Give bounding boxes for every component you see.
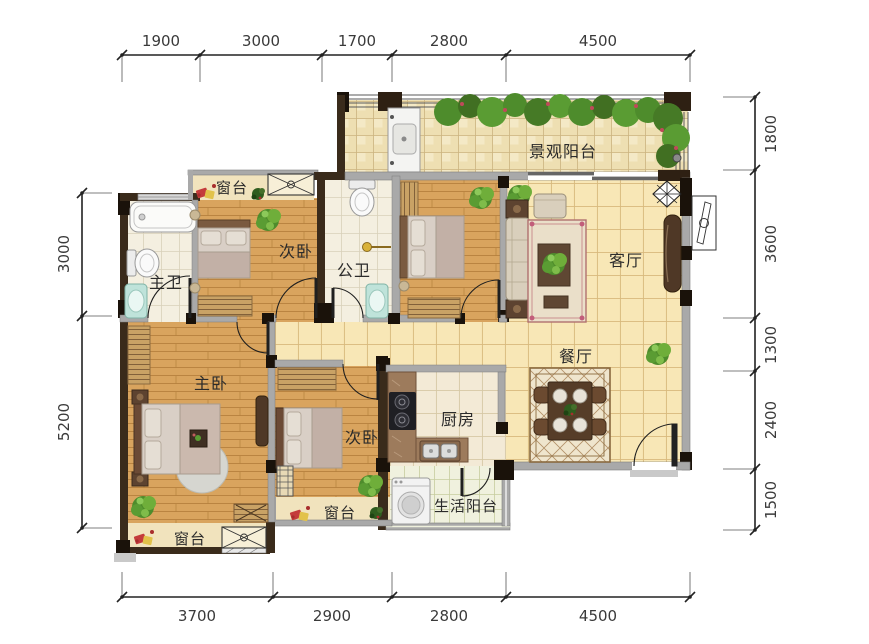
bed-icon [400,216,464,278]
hallway-floor [239,320,509,366]
master-bay-xbox-icon [222,527,266,548]
dim-top-4: 2800 [430,32,468,50]
bench-icon [234,504,268,522]
dim-bottom-3: 2800 [430,607,468,625]
public-bath-label: 公卫 [337,261,371,280]
sink-icon [366,284,388,318]
dim-right-1: 1800 [762,115,780,153]
tv-cabinet-icon [664,215,681,292]
kitchen-label: 厨房 [441,410,475,429]
utility-balcony-label: 生活阳台 [434,497,498,515]
dim-top-5: 4500 [579,32,617,50]
toilet-icon [349,180,375,216]
baywindow-box-icon [268,174,314,195]
bed-icon [276,408,342,468]
duct-shaft-icon [692,196,716,250]
balcony-vanity [388,108,420,172]
dim-left-2: 5200 [55,403,73,441]
stool-icon [399,281,409,291]
wardrobe-icon [408,298,460,318]
dim-bottom-1: 3700 [178,607,216,625]
dining-label: 餐厅 [559,347,593,366]
living-label: 客厅 [609,251,643,270]
sill3-label: 窗台 [324,504,356,522]
double-sink-icon [420,441,460,461]
balcony-drain [673,154,681,162]
sill2-label: 窗台 [174,530,206,548]
sink-icon [125,284,147,318]
wardrobe-icon [128,326,150,384]
tv-stand-icon [256,396,268,446]
washing-machine-icon [392,478,430,524]
wardrobe-icon [198,296,252,316]
dimension-right: 1800 3600 1300 2400 1500 [723,92,780,535]
dim-right-5: 1500 [762,481,780,519]
bed-icon [132,390,220,486]
dim-right-2: 3600 [762,225,780,263]
master-bath-label: 主卫 [149,273,183,292]
wardrobe-icon [401,182,418,218]
tv-bench-icon [544,296,568,308]
view-balcony-label: 景观阳台 [529,142,597,161]
wardrobe-icon [278,368,336,390]
sill1-label: 窗台 [216,179,248,197]
dim-right-3: 1300 [762,326,780,364]
master-bedroom-label: 主卧 [194,374,228,393]
bathtub-icon [130,202,196,232]
dim-top-1: 1900 [142,32,180,50]
bed-icon [198,220,250,278]
coffee-table-icon [538,244,570,286]
dimension-top: 1900 3000 1700 2800 4500 [117,32,695,82]
floor-plan-canvas: 景观阳台 [0,0,869,644]
bedroom1-label: 次卧 [279,242,313,261]
floor-plan-page: 景观阳台 [0,0,869,644]
dim-top-2: 3000 [242,32,280,50]
dimension-left: 3000 5200 [55,188,112,533]
rack-icon [277,466,293,496]
dining-table-icon [548,382,592,440]
stool-icon [190,210,200,220]
dim-top-3: 1700 [338,32,376,50]
stool-icon [190,283,200,293]
bedroom3-label: 次卧 [345,428,379,447]
dim-left-1: 3000 [55,235,73,273]
dim-bottom-2: 2900 [313,607,351,625]
balcony-left-wall [337,95,345,178]
dim-right-4: 2400 [762,401,780,439]
entry-diamond-icon [653,181,681,207]
stove-icon [389,392,416,430]
dim-bottom-4: 4500 [579,607,617,625]
